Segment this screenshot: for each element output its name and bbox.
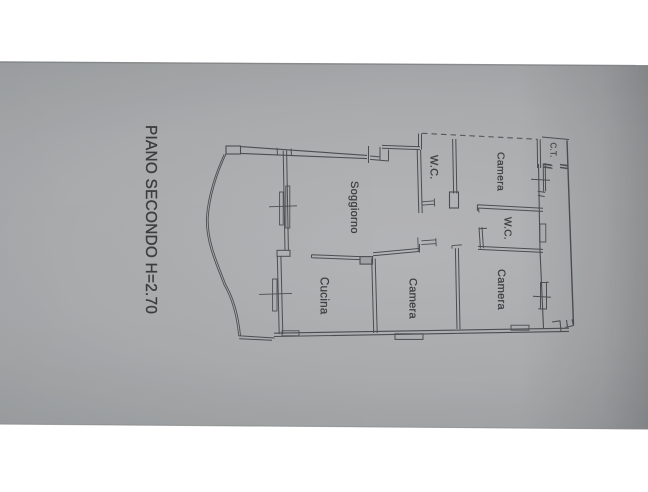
svg-text:Cucina: Cucina xyxy=(318,277,330,315)
svg-text:Camera: Camera xyxy=(407,278,419,320)
svg-text:Camera: Camera xyxy=(495,152,507,191)
svg-text:W.C.: W.C. xyxy=(502,217,513,240)
svg-text:W.C.: W.C. xyxy=(428,155,440,180)
svg-text:PIANO SECONDO H=2.70: PIANO SECONDO H=2.70 xyxy=(142,125,159,314)
svg-text:Soggiorno: Soggiorno xyxy=(348,181,360,234)
svg-text:C.T.: C.T. xyxy=(549,143,558,158)
svg-text:Camera: Camera xyxy=(495,269,507,311)
